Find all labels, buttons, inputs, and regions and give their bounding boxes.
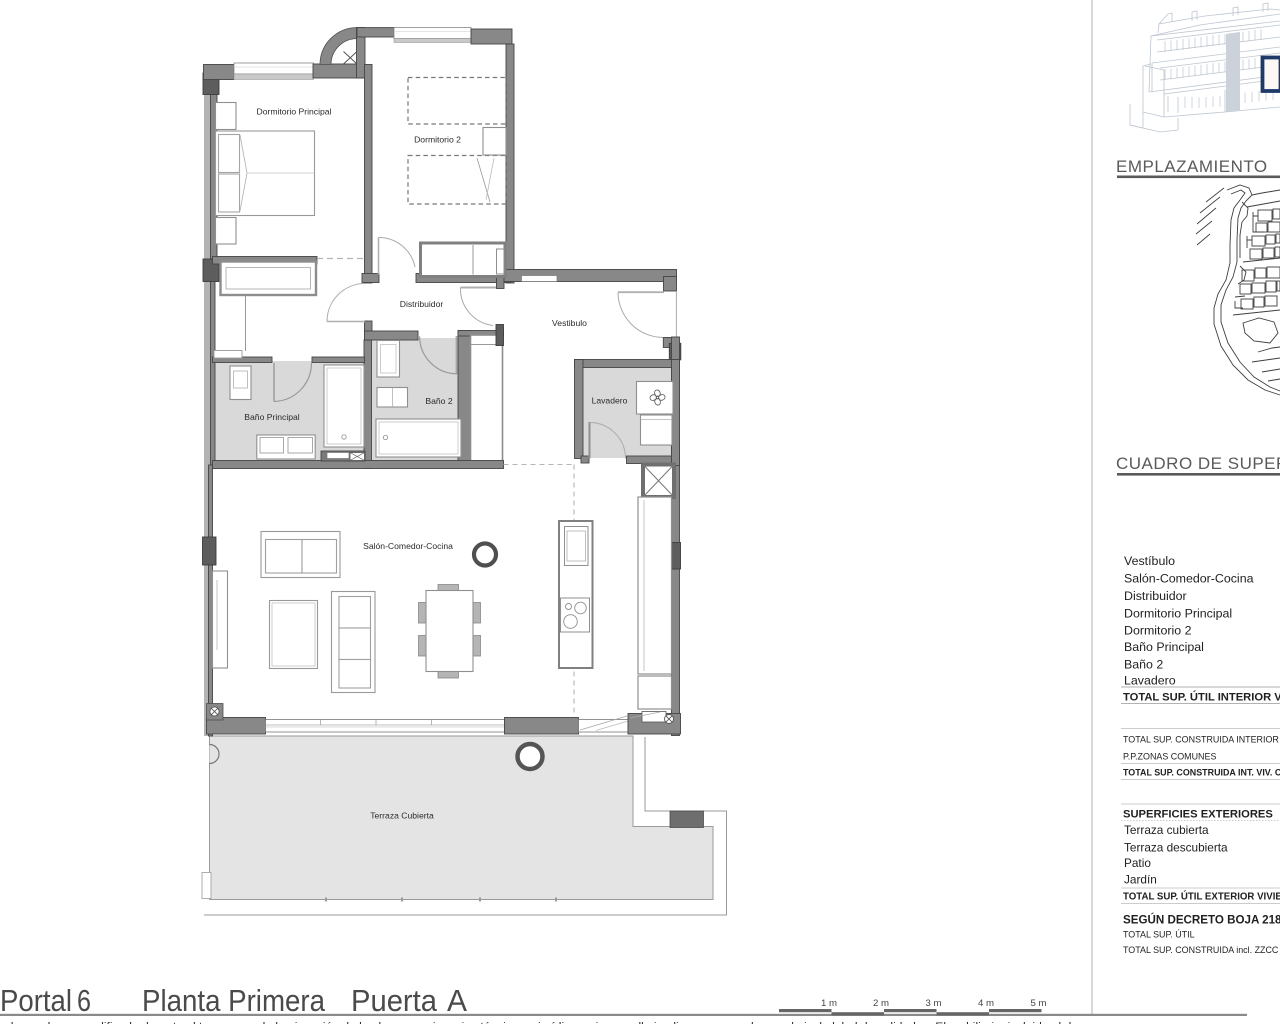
svg-text:TOTAL SUP. ÚTIL INTERIOR V: TOTAL SUP. ÚTIL INTERIOR V: [1123, 691, 1280, 704]
svg-text:Puerta: Puerta: [351, 983, 438, 1018]
svg-text:Salón-Comedor-Cocina: Salón-Comedor-Cocina: [363, 541, 453, 551]
svg-text:Vestibulo: Vestibulo: [552, 318, 587, 328]
svg-text:4 m: 4 m: [978, 998, 994, 1009]
svg-text:SUPERFICIES EXTERIORES: SUPERFICIES EXTERIORES: [1123, 809, 1273, 821]
svg-text:CUADRO DE SUPERFICIES: CUADRO DE SUPERFICIES: [1116, 454, 1280, 473]
svg-text:odo puede ser modificado duran: odo puede ser modificado durante el tran…: [0, 1021, 1078, 1024]
svg-text:Jardín: Jardín: [1124, 873, 1157, 887]
svg-text:Salón-Comedor-Cocina: Salón-Comedor-Cocina: [1124, 572, 1254, 586]
svg-text:Baño Principal: Baño Principal: [244, 412, 300, 422]
svg-text:2 m: 2 m: [873, 998, 889, 1009]
svg-text:Dormitorio 2: Dormitorio 2: [414, 135, 461, 145]
svg-text:6: 6: [77, 983, 91, 1018]
svg-text:TOTAL SUP. CONSTRUIDA incl. ZZ: TOTAL SUP. CONSTRUIDA incl. ZZCC: [1123, 945, 1279, 955]
svg-text:Terraza cubierta: Terraza cubierta: [1124, 823, 1209, 837]
svg-text:Distribuidor: Distribuidor: [400, 299, 444, 309]
svg-text:TOTAL SUP. CONSTRUIDA INT. VIV: TOTAL SUP. CONSTRUIDA INT. VIV. CO: [1123, 767, 1280, 777]
svg-text:Baño 2: Baño 2: [1124, 658, 1163, 672]
svg-text:Baño 2: Baño 2: [425, 396, 452, 406]
svg-text:Patio: Patio: [1124, 856, 1151, 870]
svg-text:Lavadero: Lavadero: [592, 396, 628, 406]
svg-text:TOTAL SUP. CONSTRUIDA INTERIOR: TOTAL SUP. CONSTRUIDA INTERIOR: [1123, 734, 1279, 744]
svg-text:Baño Principal: Baño Principal: [1124, 640, 1204, 654]
svg-text:TOTAL SUP. ÚTIL: TOTAL SUP. ÚTIL: [1123, 929, 1195, 939]
svg-text:EMPLAZAMIENTO: EMPLAZAMIENTO: [1116, 157, 1268, 176]
svg-text:Terraza Cubierta: Terraza Cubierta: [370, 811, 434, 821]
svg-text:5 m: 5 m: [1031, 998, 1047, 1009]
svg-text:Dormitorio Principal: Dormitorio Principal: [1124, 607, 1232, 621]
svg-text:SEGÚN DECRETO BOJA 218/2: SEGÚN DECRETO BOJA 218/2: [1123, 914, 1280, 927]
svg-text:1 m: 1 m: [821, 998, 837, 1009]
svg-text:A: A: [447, 983, 467, 1018]
svg-text:Terraza descubierta: Terraza descubierta: [1124, 841, 1228, 855]
svg-text:Lavadero: Lavadero: [1124, 674, 1176, 688]
svg-text:P.P.ZONAS COMUNES: P.P.ZONAS COMUNES: [1123, 751, 1216, 761]
svg-text:Portal: Portal: [0, 983, 72, 1018]
svg-text:3 m: 3 m: [926, 998, 942, 1009]
svg-text:Planta Primera: Planta Primera: [142, 983, 326, 1018]
svg-text:Dormitorio Principal: Dormitorio Principal: [257, 107, 332, 117]
svg-text:TOTAL SUP. ÚTIL EXTERIOR VIVIE: TOTAL SUP. ÚTIL EXTERIOR VIVIE: [1123, 890, 1280, 902]
svg-text:Vestíbulo: Vestíbulo: [1124, 554, 1175, 568]
svg-text:Distribuidor: Distribuidor: [1124, 589, 1187, 603]
svg-text:Dormitorio 2: Dormitorio 2: [1124, 624, 1192, 638]
